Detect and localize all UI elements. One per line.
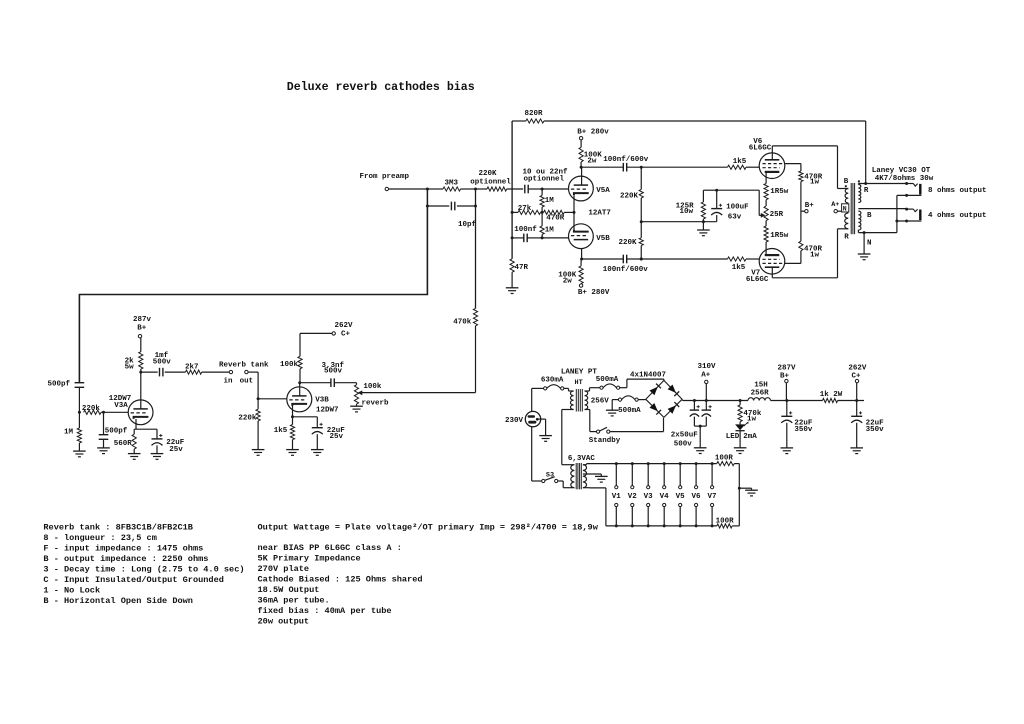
svg-text:V4: V4: [660, 493, 670, 501]
svg-text:in: in: [224, 377, 234, 385]
svg-text:C+: C+: [852, 373, 862, 381]
svg-text:6,3VAC: 6,3VAC: [568, 455, 596, 463]
svg-text:V3B: V3B: [315, 397, 329, 405]
svg-text:Cathode Biased : 125 Ohms shar: Cathode Biased : 125 Ohms shared: [258, 575, 423, 585]
svg-text:262V: 262V: [848, 365, 867, 373]
svg-text:S3: S3: [546, 472, 554, 480]
svg-text:220K: 220K: [619, 239, 638, 247]
svg-text:A+: A+: [831, 201, 839, 209]
svg-text:3M3: 3M3: [445, 180, 459, 188]
svg-text:287V: 287V: [778, 365, 797, 373]
svg-text:500v: 500v: [153, 359, 172, 367]
svg-text:220K: 220K: [620, 193, 639, 201]
svg-text:optionnel: optionnel: [524, 176, 565, 184]
svg-text:220k: 220k: [82, 405, 101, 413]
svg-text:4x1N4007: 4x1N4007: [630, 371, 666, 379]
svg-text:500mA: 500mA: [618, 407, 641, 415]
svg-text:V5A: V5A: [596, 187, 610, 195]
svg-text:Standby: Standby: [589, 437, 621, 445]
svg-text:256V: 256V: [591, 397, 610, 405]
svg-text:18.5W Output: 18.5W Output: [258, 585, 320, 595]
svg-text:500mA: 500mA: [596, 376, 619, 384]
svg-text:262V: 262V: [335, 322, 354, 330]
svg-text:6L6GC: 6L6GC: [749, 145, 772, 153]
svg-text:B+: B+: [137, 325, 147, 333]
svg-text:B+: B+: [805, 202, 815, 210]
svg-text:Reverb tank: Reverb tank: [219, 362, 269, 370]
svg-text:310V: 310V: [698, 363, 717, 371]
svg-text:2x50uF: 2x50uF: [671, 432, 699, 440]
svg-text:270V plate: 270V plate: [258, 564, 310, 574]
svg-text:1w: 1w: [810, 251, 820, 259]
svg-text:470R: 470R: [546, 215, 565, 223]
svg-text:100nf/600v: 100nf/600v: [603, 266, 649, 274]
svg-text:36mA per tube.: 36mA per tube.: [258, 596, 330, 606]
svg-text:V3: V3: [644, 493, 654, 501]
svg-text:25v: 25v: [330, 433, 344, 441]
svg-text:R: R: [844, 234, 849, 242]
svg-text:4 ohms output: 4 ohms output: [928, 212, 987, 220]
svg-text:B: B: [867, 212, 872, 220]
svg-text:R: R: [864, 187, 869, 195]
svg-text:2k7: 2k7: [185, 364, 199, 372]
svg-text:N: N: [867, 239, 872, 247]
svg-text:2w: 2w: [587, 158, 597, 166]
svg-text:1M: 1M: [64, 428, 74, 436]
svg-text:From preamp: From preamp: [360, 173, 410, 181]
svg-text:100R: 100R: [716, 517, 735, 525]
svg-text:15H: 15H: [754, 382, 768, 390]
svg-text:2w: 2w: [563, 278, 573, 286]
svg-text:Output Wattage = Plate voltage: Output Wattage = Plate voltage²/OT prima…: [258, 523, 599, 533]
svg-text:B+ 280v: B+ 280v: [577, 128, 609, 136]
svg-text:Reverb tank : 8FB3C1B/8FB2C1B: Reverb tank : 8FB3C1B/8FB2C1B: [43, 523, 193, 533]
svg-text:500v: 500v: [674, 440, 693, 448]
svg-text:C - Input Insulated/Output Gro: C - Input Insulated/Output Grounded: [43, 575, 224, 585]
svg-text:V5: V5: [676, 493, 686, 501]
svg-text:fixed bias : 40mA per tube: fixed bias : 40mA per tube: [258, 606, 392, 616]
svg-text:1M: 1M: [545, 197, 555, 205]
svg-text:reverb: reverb: [362, 400, 390, 408]
svg-text:560R: 560R: [114, 440, 133, 448]
svg-text:630mA: 630mA: [541, 377, 564, 385]
svg-text:500v: 500v: [324, 368, 343, 376]
svg-text:B+: B+: [780, 373, 790, 381]
svg-text:100nf: 100nf: [514, 226, 537, 234]
svg-text:470k: 470k: [453, 318, 472, 326]
svg-text:A+: A+: [701, 371, 711, 379]
svg-text:20w output: 20w output: [258, 617, 310, 627]
svg-text:1w: 1w: [810, 178, 820, 186]
svg-text:N: N: [843, 206, 847, 213]
svg-text:F - input impedance : 1475 ohm: F - input impedance : 1475 ohms: [43, 544, 203, 554]
svg-text:820R: 820R: [525, 110, 544, 118]
svg-text:5w: 5w: [125, 364, 135, 372]
svg-text:B - Horizontal Open Side Down: B - Horizontal Open Side Down: [43, 596, 193, 606]
svg-text:100R: 100R: [715, 454, 734, 462]
svg-text:12DW7: 12DW7: [316, 406, 339, 414]
svg-text:5K Primary Impedance: 5K Primary Impedance: [258, 554, 361, 564]
svg-text:4K7/8ohms 30w: 4K7/8ohms 30w: [875, 175, 934, 183]
svg-text:C+: C+: [341, 331, 351, 339]
svg-text:V2: V2: [628, 493, 638, 501]
svg-text:1k 2W: 1k 2W: [820, 391, 843, 399]
svg-text:near BIAS PP 6L6GC class A :: near BIAS PP 6L6GC class A :: [258, 543, 402, 553]
svg-text:8 - longueur : 23,5 cm: 8 - longueur : 23,5 cm: [43, 533, 156, 543]
svg-text:350v: 350v: [866, 426, 885, 434]
svg-text:1k5: 1k5: [733, 158, 747, 166]
svg-text:500pf: 500pf: [105, 428, 128, 436]
svg-text:12AT7: 12AT7: [588, 210, 611, 218]
svg-text:LED: LED: [726, 433, 740, 441]
svg-text:Deluxe reverb cathodes bias: Deluxe reverb cathodes bias: [287, 81, 475, 94]
svg-text:230V: 230V: [505, 417, 524, 425]
svg-text:220K: 220K: [479, 170, 498, 178]
svg-text:1k5: 1k5: [274, 427, 288, 435]
svg-text:Laney VC30 OT: Laney VC30 OT: [872, 167, 931, 175]
svg-text:10w: 10w: [680, 208, 694, 216]
svg-text:100k: 100k: [363, 383, 382, 391]
svg-text:V6: V6: [692, 493, 702, 501]
svg-text:6L6GC: 6L6GC: [746, 276, 769, 284]
svg-text:B+ 280V: B+ 280V: [578, 289, 610, 297]
svg-text:25v: 25v: [169, 446, 183, 454]
svg-text:V5B: V5B: [596, 235, 610, 243]
svg-text:1k5: 1k5: [732, 264, 746, 272]
svg-text:63v: 63v: [728, 214, 742, 222]
svg-text:B: B: [844, 178, 849, 186]
svg-text:LANEY PT: LANEY PT: [561, 369, 598, 377]
svg-text:47R: 47R: [515, 264, 529, 272]
svg-text:100nf/600v: 100nf/600v: [603, 156, 649, 164]
svg-text:220k: 220k: [238, 415, 257, 423]
svg-text:1R5w: 1R5w: [770, 188, 789, 196]
svg-text:25R: 25R: [770, 211, 784, 219]
svg-text:27k: 27k: [518, 205, 532, 213]
svg-text:100uF: 100uF: [726, 204, 749, 212]
svg-text:500pf: 500pf: [48, 381, 71, 389]
svg-text:V3A: V3A: [114, 402, 128, 410]
svg-text:1w: 1w: [747, 416, 757, 424]
svg-text:1M: 1M: [545, 227, 555, 235]
svg-text:HT: HT: [575, 379, 583, 387]
svg-text:350v: 350v: [794, 426, 813, 434]
svg-text:1 - No Lock: 1 - No Lock: [43, 586, 100, 596]
svg-text:out: out: [240, 377, 254, 385]
svg-text:3 - Decay time : Long (2.75 to: 3 - Decay time : Long (2.75 to 4.0 sec): [43, 565, 244, 575]
svg-text:V1: V1: [612, 493, 622, 501]
svg-text:100k: 100k: [280, 361, 299, 369]
svg-text:B - output impedance : 2250 oh: B - output impedance : 2250 ohms: [43, 554, 208, 564]
svg-text:10pf: 10pf: [458, 221, 477, 229]
svg-text:V7: V7: [708, 493, 717, 501]
svg-text:1R5w: 1R5w: [770, 232, 789, 240]
svg-text:optionnel: optionnel: [470, 179, 511, 187]
svg-text:287v: 287v: [133, 316, 152, 324]
svg-text:256R: 256R: [751, 390, 770, 398]
svg-text:8 ohms output: 8 ohms output: [928, 187, 987, 195]
svg-text:2mA: 2mA: [743, 433, 757, 441]
